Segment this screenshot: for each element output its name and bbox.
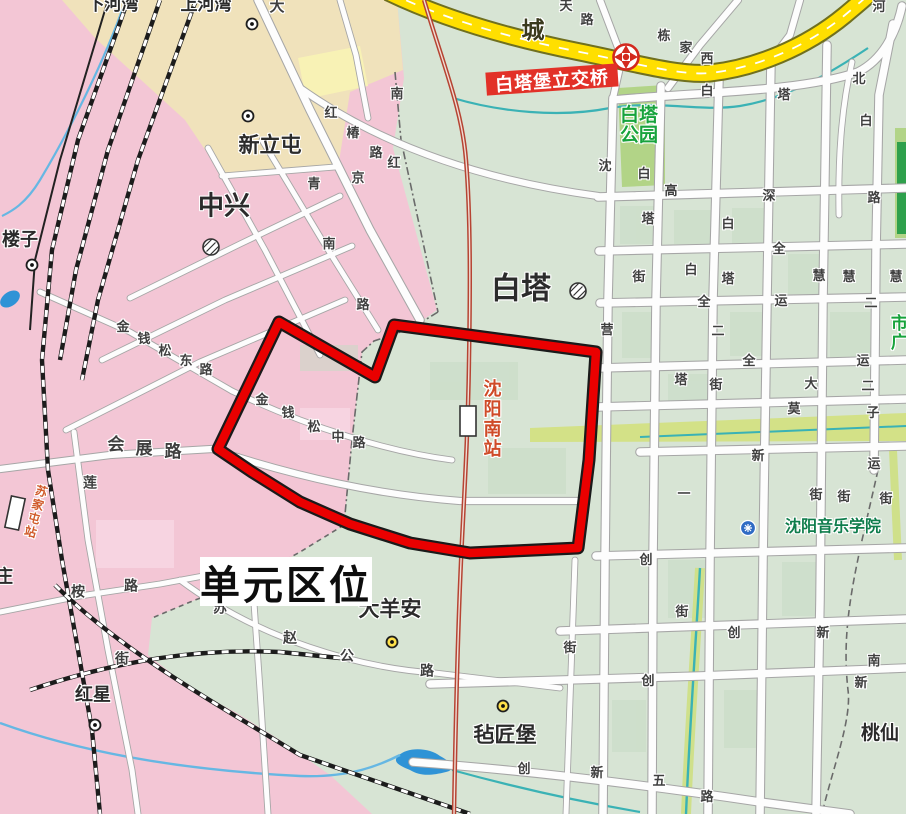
road-char: 运	[856, 354, 869, 368]
road-char: 路	[867, 191, 880, 205]
road-char: 城	[522, 18, 545, 42]
road-char: 桉	[71, 585, 85, 600]
road-char: 慧	[842, 270, 855, 284]
road-char: 白	[721, 217, 734, 231]
road-char: 北	[852, 72, 865, 86]
place-label: 白塔	[491, 273, 551, 305]
road-char: 二	[864, 296, 877, 310]
map-viewport[interactable]: 下河湾上河湾大城天路栋家西河白塔北白南新立屯红椿路红青京中兴南路沈白高深路塔白全…	[0, 0, 906, 814]
road-char: 大	[269, 0, 284, 15]
road-char: 白	[859, 114, 872, 128]
road-char: 莲	[83, 476, 97, 491]
road-char: 子	[866, 406, 879, 420]
map-labels-layer: 下河湾上河湾大城天路栋家西河白塔北白南新立屯红椿路红青京中兴南路沈白高深路塔白全…	[0, 0, 906, 814]
road-char: 全	[697, 295, 710, 309]
road-char: 新	[854, 676, 867, 690]
road-char: 大	[804, 377, 817, 391]
road-char: 全	[772, 242, 785, 256]
road-char: 天	[559, 0, 572, 13]
place-label: 桃仙	[861, 724, 899, 744]
road-char: 街	[675, 605, 688, 619]
road-char: 松	[158, 344, 171, 358]
road-char: 新	[590, 766, 603, 780]
road-char: 高	[664, 184, 677, 198]
road-char: 街	[809, 488, 822, 502]
park-name-baita: 白塔公园	[620, 106, 658, 146]
road-char: 松	[307, 420, 320, 434]
road-char: 钱	[281, 406, 294, 420]
place-label-green: 市广	[888, 314, 906, 352]
road-char: 路	[199, 363, 212, 377]
road-char: 青	[307, 177, 320, 191]
unit-location-title: 单元区位	[200, 557, 372, 606]
road-char: 路	[700, 790, 713, 804]
road-char: 路	[352, 436, 365, 450]
road-char: 椿	[346, 126, 359, 140]
road-char: 运	[867, 457, 880, 471]
road-char: 会	[108, 436, 125, 454]
road-char: 慧	[812, 269, 825, 283]
road-char: 赵	[283, 631, 297, 646]
road-char: 深	[762, 189, 775, 203]
road-char: 西	[700, 52, 713, 66]
road-char: 街	[115, 652, 129, 667]
place-label: 红星	[75, 686, 111, 705]
road-char: 全	[742, 354, 755, 368]
road-char: 街	[632, 270, 645, 284]
road-char: 新	[751, 449, 764, 463]
place-label: 楼子	[2, 231, 38, 250]
place-label: 下河湾	[88, 0, 139, 14]
road-char: 街	[837, 490, 850, 504]
road-char: 公	[340, 649, 354, 664]
road-char: 东	[179, 354, 192, 368]
place-label: 庄	[0, 568, 13, 587]
road-char: 南	[322, 237, 335, 251]
road-char: 路	[580, 13, 593, 27]
place-label: 中兴	[198, 192, 250, 219]
place-label: 上河湾	[181, 0, 232, 14]
road-char: 栋	[657, 29, 670, 43]
road-char: 金	[255, 393, 268, 407]
road-char: 运	[774, 294, 787, 308]
road-char: 莫	[787, 402, 800, 416]
road-char: 塔	[674, 373, 687, 387]
road-char: 二	[861, 379, 874, 393]
college-name: 沈阳音乐学院	[785, 520, 881, 537]
road-char: 红	[387, 156, 400, 170]
road-char: 街	[563, 641, 576, 655]
road-char: 白	[637, 167, 650, 181]
road-char: 创	[639, 553, 652, 567]
station-name-sujiatun: 苏家屯站	[22, 483, 49, 540]
road-char: 塔	[641, 212, 654, 226]
road-char: 家	[679, 41, 692, 55]
road-char: 路	[165, 443, 182, 461]
road-char: 路	[369, 146, 382, 160]
road-char: 白	[684, 263, 697, 277]
road-char: 河	[872, 0, 885, 14]
road-char: 慧	[889, 270, 902, 284]
road-char: 街	[879, 492, 892, 506]
road-char: 展	[136, 440, 153, 458]
road-char: 中	[331, 430, 344, 444]
road-char: 金	[116, 320, 129, 334]
road-char: 新	[816, 626, 829, 640]
road-char: 路	[124, 579, 138, 594]
place-label: 毡匠堡	[474, 725, 537, 747]
road-char: 红	[324, 106, 337, 120]
road-char: 路	[356, 298, 369, 312]
road-char: 创	[641, 674, 654, 688]
road-char: 白	[700, 84, 713, 98]
road-char: 创	[727, 626, 740, 640]
road-char: 二	[711, 324, 724, 338]
place-label: 新立屯	[239, 135, 302, 157]
road-char: 五	[652, 774, 665, 788]
road-char: 塔	[777, 88, 790, 102]
road-char: 创	[517, 762, 530, 776]
road-char: 钱	[137, 332, 150, 346]
station-name-shenyang-south: 沈阳南站	[482, 379, 501, 459]
road-char: 路	[420, 664, 434, 679]
road-char: 街	[709, 378, 722, 392]
road-char: 塔	[721, 272, 734, 286]
road-char: 沈	[598, 159, 611, 173]
road-char: 南	[390, 87, 403, 101]
road-char: 南	[867, 654, 880, 668]
road-char: 一	[677, 487, 690, 501]
road-char: 营	[600, 323, 613, 337]
road-char: 京	[351, 171, 364, 185]
